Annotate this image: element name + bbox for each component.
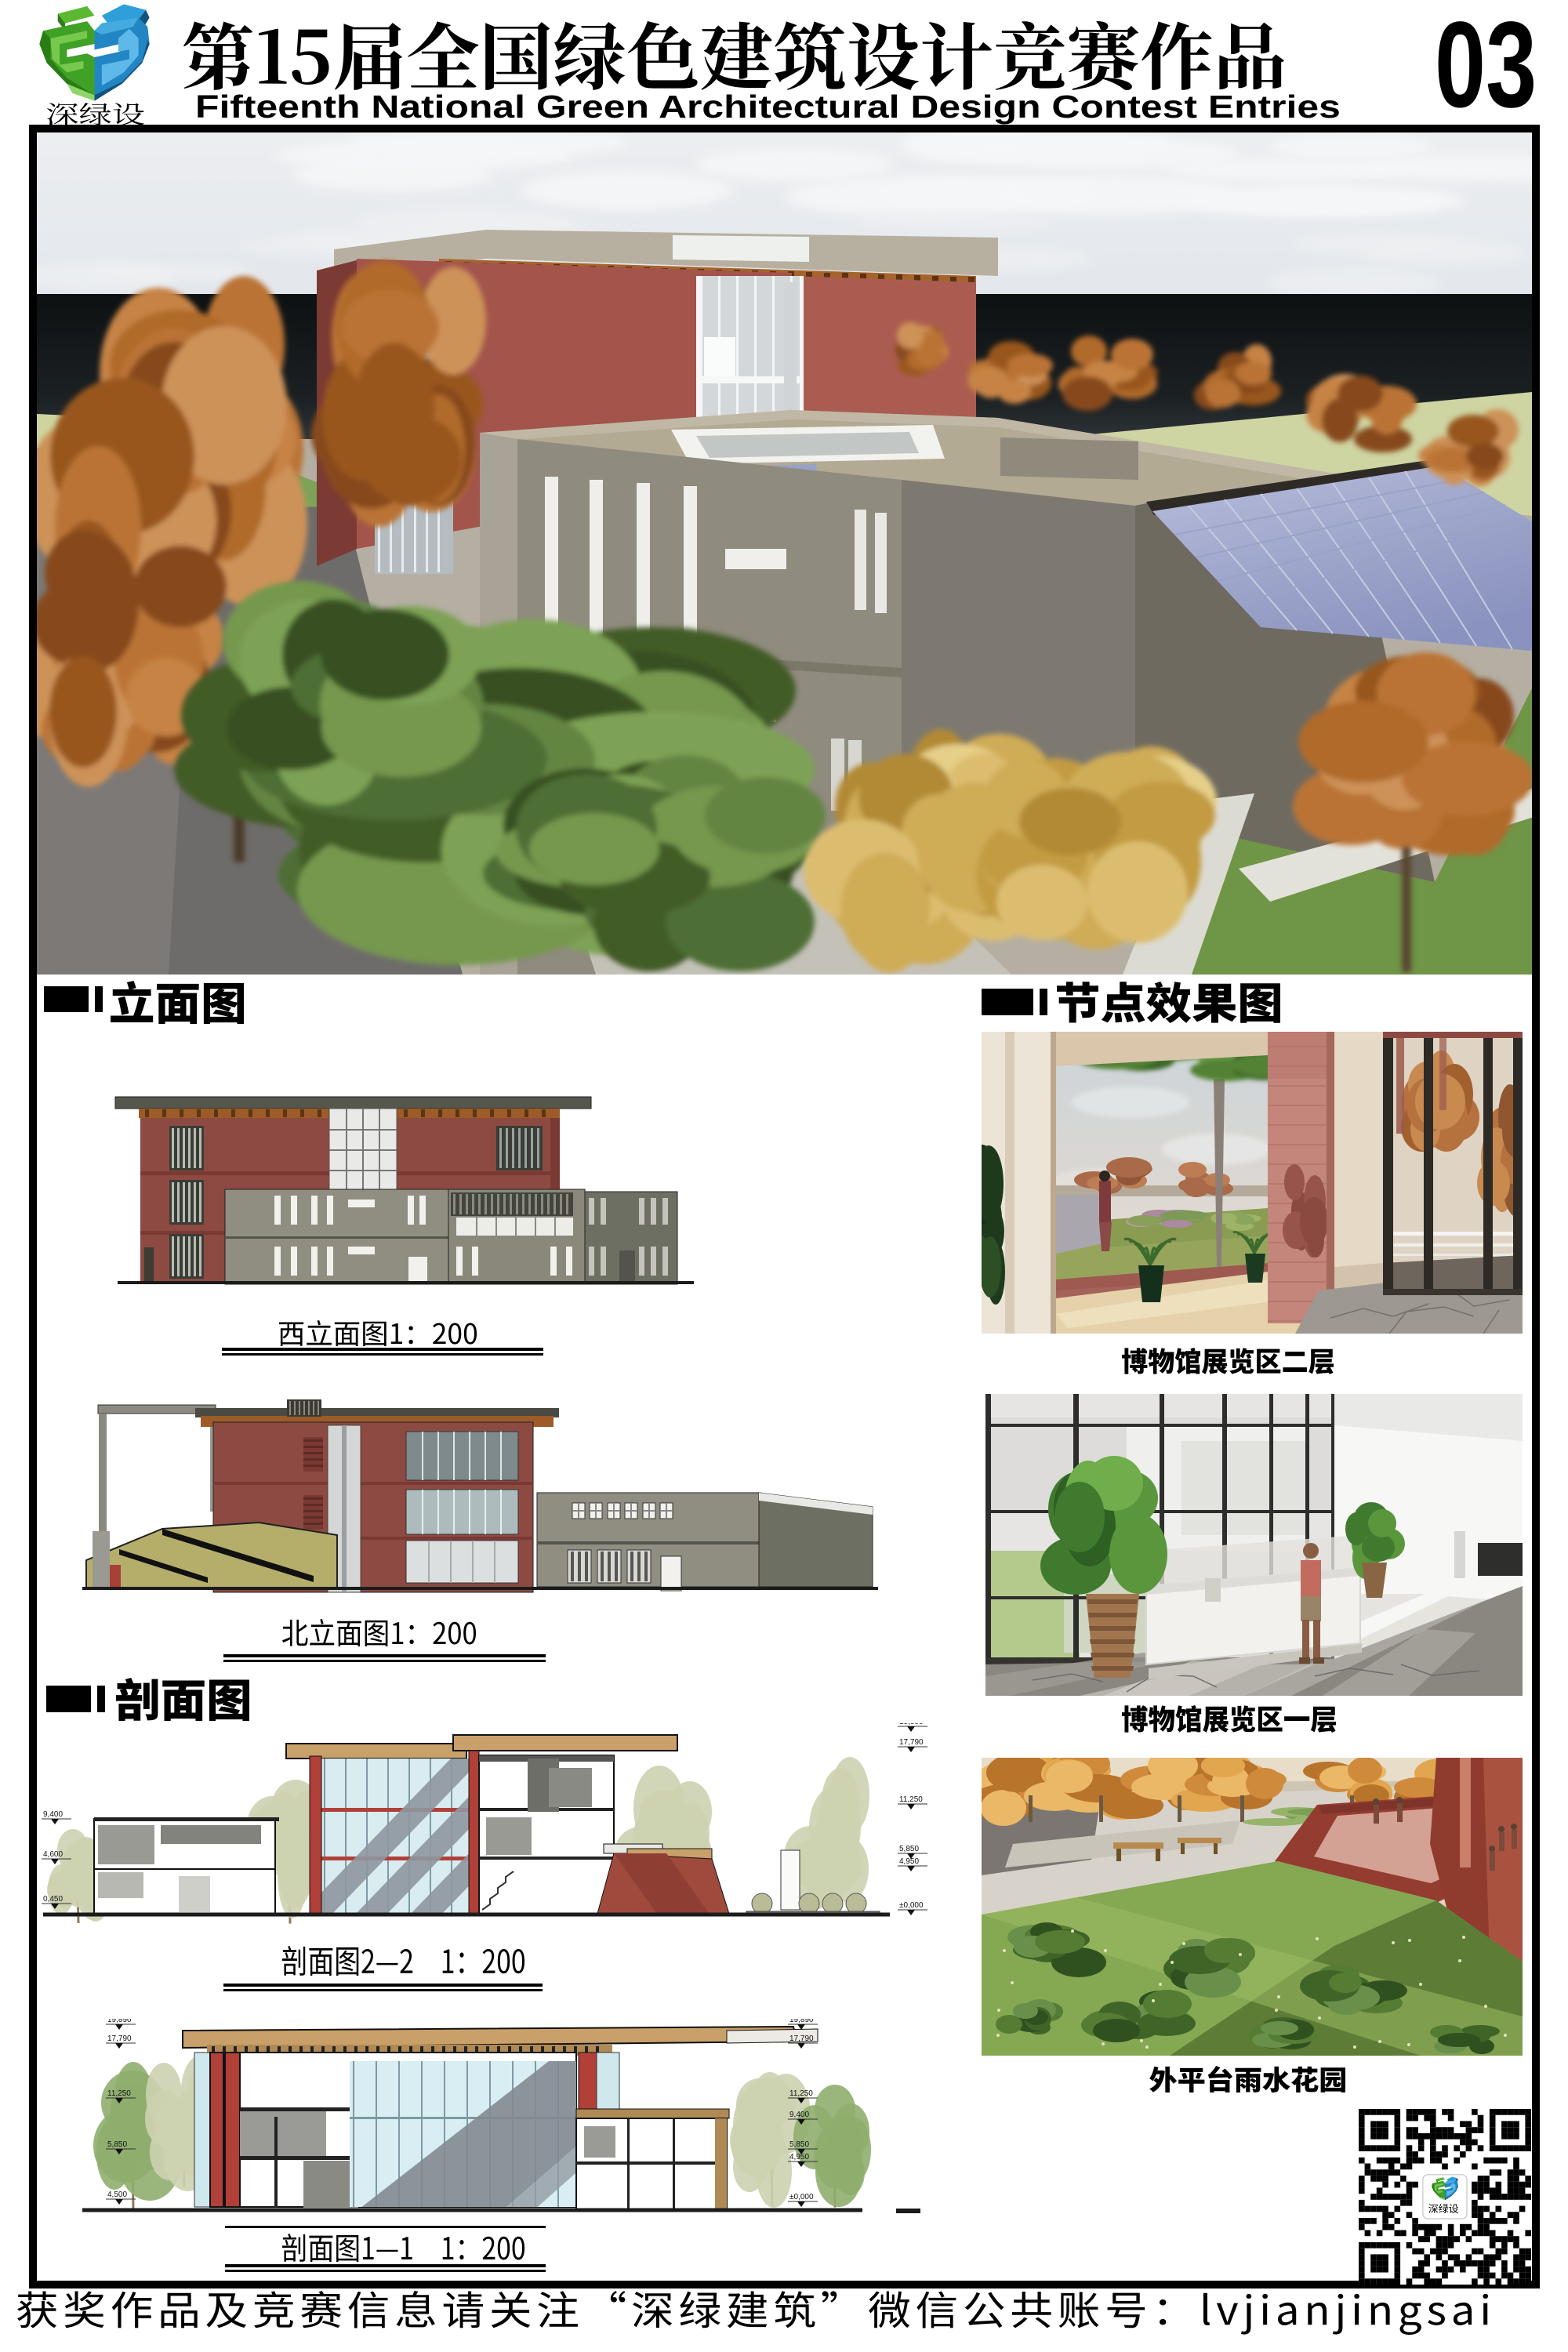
svg-text:±0,000: ±0,000: [899, 1901, 924, 1910]
svg-text:4,950: 4,950: [789, 2153, 809, 2161]
svg-text:19,890: 19,890: [899, 1723, 924, 1726]
svg-text:4,600: 4,600: [43, 1850, 63, 1859]
svg-text:±0,000: ±0,000: [789, 2193, 814, 2201]
svg-text:19,890: 19,890: [789, 2019, 814, 2024]
svg-text:9,400: 9,400: [43, 1810, 63, 1819]
svg-text:0,450: 0,450: [43, 1895, 63, 1904]
svg-text:11,250: 11,250: [789, 2089, 813, 2098]
svg-text:11,250: 11,250: [107, 2089, 131, 2098]
svg-text:19,890: 19,890: [107, 2019, 132, 2024]
svg-text:11,250: 11,250: [899, 1795, 923, 1804]
svg-text:9,400: 9,400: [789, 2111, 809, 2119]
svg-text:17,790: 17,790: [899, 1738, 924, 1747]
svg-text:5,850: 5,850: [789, 2140, 809, 2149]
svg-text:5,850: 5,850: [899, 1845, 919, 1853]
svg-text:5,850: 5,850: [107, 2140, 127, 2149]
svg-text:17,790: 17,790: [107, 2034, 132, 2043]
svg-text:4,950: 4,950: [899, 1857, 919, 1866]
svg-text:4,500: 4,500: [107, 2190, 127, 2199]
svg-text:17,790: 17,790: [789, 2034, 814, 2043]
